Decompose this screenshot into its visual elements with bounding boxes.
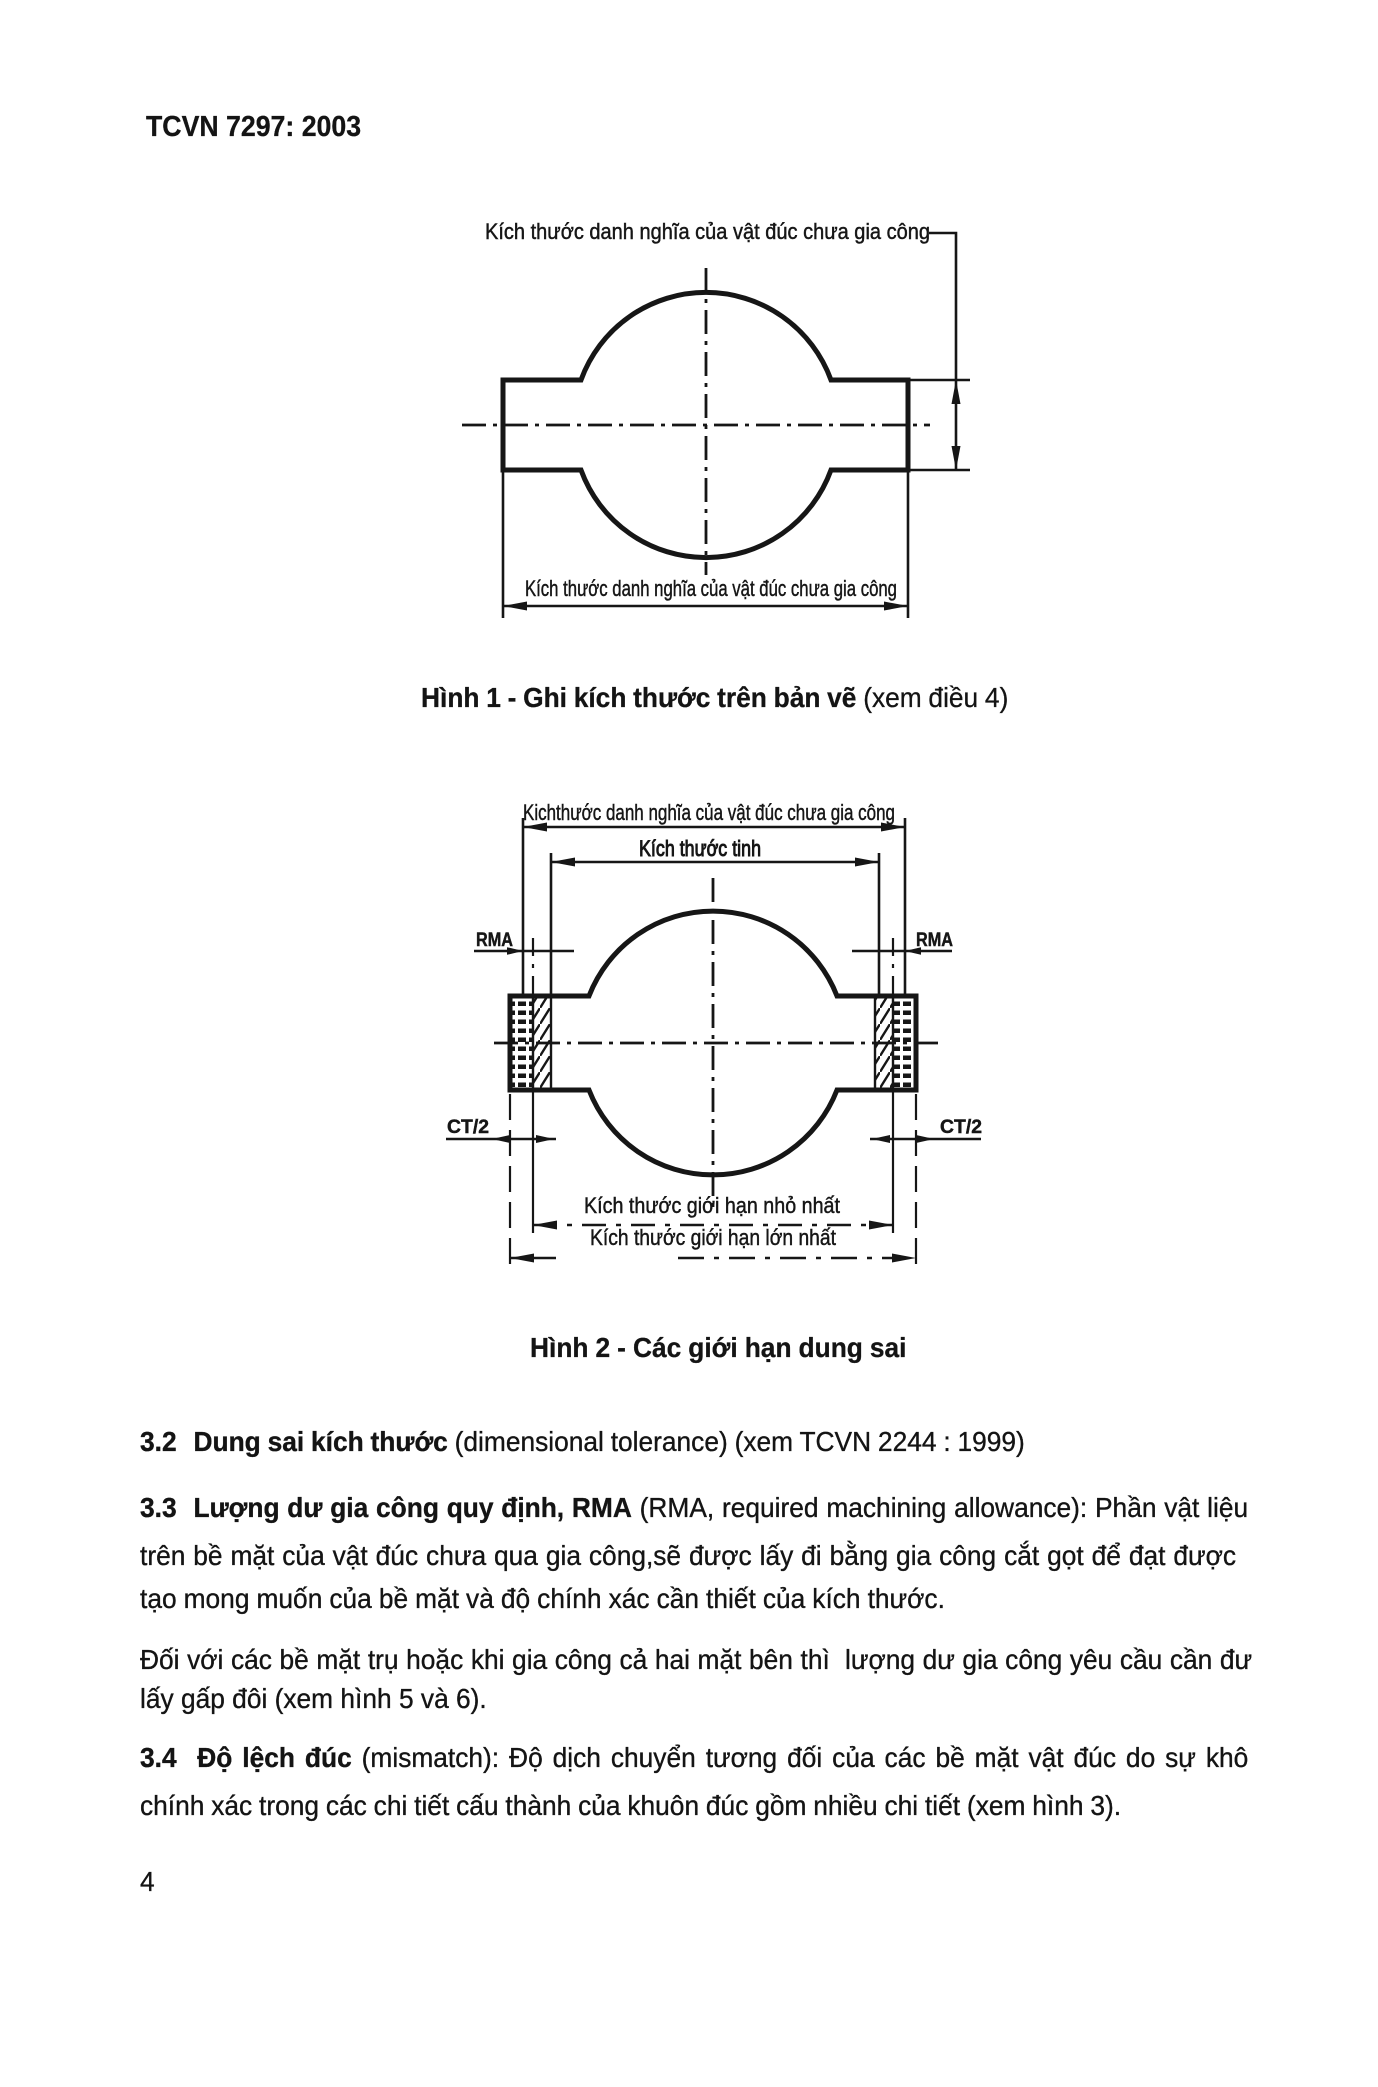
svg-text:Kích thước giới hạn lớn nhất: Kích thước giới hạn lớn nhất (590, 1225, 836, 1250)
svg-text:Kích thước danh nghĩa của vật: Kích thước danh nghĩa của vật đúc chưa g… (485, 219, 930, 244)
svg-text:Kích thước danh nghĩa của vật: Kích thước danh nghĩa của vật đúc chưa g… (525, 576, 897, 601)
svg-text:Kích thước giới hạn nhỏ nhất: Kích thước giới hạn nhỏ nhất (584, 1193, 840, 1218)
svg-text:CT/2: CT/2 (940, 1117, 982, 1138)
svg-text:Kichthước danh nghĩa của vật đ: Kichthước danh nghĩa của vật đúc chưa gi… (523, 800, 895, 825)
svg-text:Kích thước tinh: Kích thước tinh (639, 836, 761, 861)
svg-text:RMA: RMA (916, 930, 953, 951)
svg-text:CT/2: CT/2 (447, 1117, 489, 1138)
